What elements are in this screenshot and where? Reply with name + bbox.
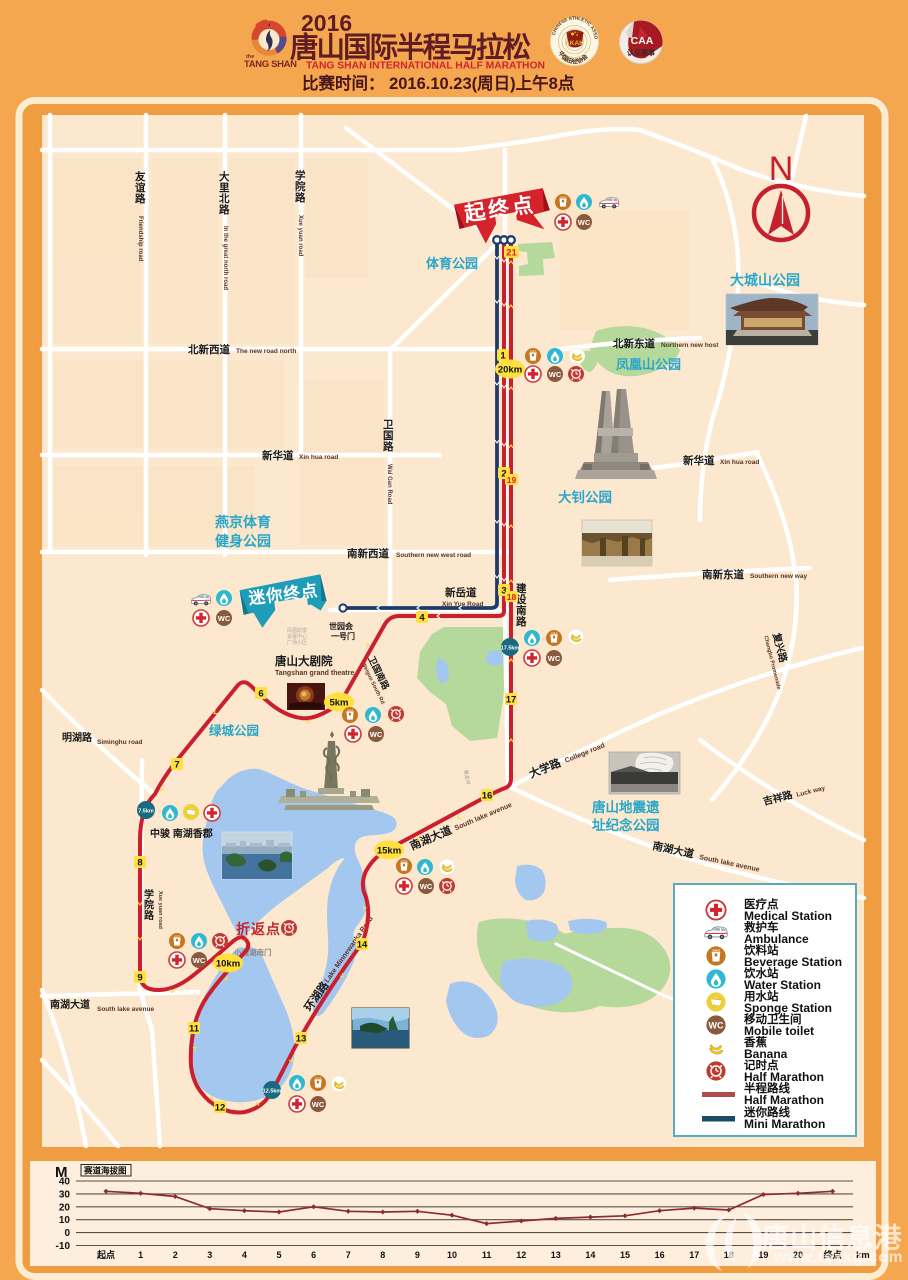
svg-text:10: 10 (59, 1215, 71, 1226)
svg-text:21: 21 (506, 248, 517, 259)
svg-text:11: 11 (482, 1250, 492, 1260)
svg-text:11: 11 (189, 1024, 200, 1035)
svg-text:Friendship road: Friendship road (137, 216, 143, 262)
svg-text:新岳道: 新岳道 (445, 586, 477, 599)
svg-text:比赛时间： 2016.10.23(周日)上午8点: 比赛时间： 2016.10.23(周日)上午8点 (302, 73, 575, 93)
svg-text:6: 6 (311, 1250, 316, 1260)
svg-text:2: 2 (173, 1250, 178, 1260)
svg-text:20km: 20km (498, 365, 522, 376)
svg-text:16: 16 (482, 791, 493, 802)
svg-text:健身公园: 健身公园 (215, 533, 271, 549)
svg-text:折返点: 折返点 (236, 921, 281, 937)
svg-text:广场小区: 广场小区 (287, 639, 307, 646)
svg-text:建设南路: 建设南路 (515, 582, 527, 628)
svg-text:南新西道: 南新西道 (347, 547, 389, 560)
svg-text:新华道: 新华道 (683, 454, 715, 467)
svg-text:15: 15 (620, 1250, 630, 1260)
svg-text:大钊公园: 大钊公园 (558, 489, 612, 505)
svg-text:Northern new host: Northern new host (661, 342, 719, 349)
svg-text:12.5km: 12.5km (263, 1089, 282, 1095)
svg-text:Beverage Station: Beverage Station (744, 955, 842, 969)
svg-text:绿城公园: 绿城公园 (209, 723, 259, 738)
svg-text:8: 8 (380, 1250, 385, 1260)
svg-text:In the great north road: In the great north road (222, 226, 228, 290)
svg-text:TANG SHAN INTERNATIONAL HALF M: TANG SHAN INTERNATIONAL HALF MARATHON (306, 61, 545, 72)
svg-text:0: 0 (64, 1228, 70, 1239)
svg-text:9: 9 (137, 973, 142, 984)
svg-text:Southern new way: Southern new way (750, 573, 807, 580)
svg-text:12: 12 (516, 1250, 526, 1260)
svg-text:17: 17 (506, 695, 517, 706)
svg-text:Wai Gan Road: Wai Gan Road (386, 464, 392, 505)
svg-text:世园会: 世园会 (329, 621, 353, 631)
svg-text:17: 17 (689, 1250, 699, 1260)
svg-text:9: 9 (415, 1250, 420, 1260)
svg-text:7: 7 (174, 760, 179, 771)
svg-text:唐山国际半程马拉松: 唐山国际半程马拉松 (290, 31, 531, 64)
svg-text:南新东道: 南新东道 (702, 568, 744, 581)
svg-text:10km: 10km (216, 959, 240, 970)
svg-text:South lake avenue: South lake avenue (97, 1006, 154, 1013)
svg-text:Mini Marathon: Mini Marathon (744, 1117, 825, 1131)
svg-text:4: 4 (419, 613, 425, 624)
svg-text:Xin hua road: Xin hua road (299, 454, 338, 461)
svg-text:Siminghu road: Siminghu road (97, 739, 143, 746)
svg-text:新华道: 新华道 (262, 449, 294, 462)
svg-text:7.5km: 7.5km (138, 809, 154, 815)
svg-text:1: 1 (500, 351, 506, 362)
svg-text:Medical Station: Medical Station (744, 909, 832, 923)
svg-text:Xin hua road: Xin hua road (720, 459, 759, 466)
svg-text:Half Marathon: Half Marathon (744, 1093, 824, 1107)
svg-text:赛道海拔图: 赛道海拔图 (83, 1166, 127, 1176)
svg-text:10: 10 (447, 1250, 457, 1260)
svg-text:16: 16 (655, 1250, 665, 1260)
svg-text:-10: -10 (56, 1241, 71, 1252)
svg-text:40: 40 (59, 1177, 71, 1188)
svg-text:19: 19 (507, 475, 517, 485)
svg-text:明湖路: 明湖路 (62, 731, 93, 744)
svg-text:4: 4 (242, 1250, 247, 1260)
svg-text:17.5km: 17.5km (501, 646, 520, 652)
svg-text:北新东道: 北新东道 (613, 337, 655, 350)
svg-text:一号门: 一号门 (331, 631, 355, 641)
svg-text:18: 18 (507, 592, 517, 602)
svg-text:凤凰山公园: 凤凰山公园 (616, 357, 681, 372)
svg-text:13: 13 (296, 1034, 307, 1045)
svg-text:唐山地震遗: 唐山地震遗 (592, 799, 660, 815)
svg-text:Sponge Station: Sponge Station (744, 1001, 832, 1015)
svg-text:20: 20 (59, 1202, 71, 1213)
svg-text:13: 13 (551, 1250, 561, 1260)
svg-text:Xue yuan road: Xue yuan road (157, 891, 163, 929)
svg-text:Mobile toilet: Mobile toilet (744, 1024, 814, 1038)
svg-text:大里北路: 大里北路 (219, 170, 230, 216)
svg-text:起点: 起点 (96, 1249, 115, 1260)
svg-text:6: 6 (258, 689, 263, 700)
svg-text:The new road north: The new road north (236, 348, 296, 355)
svg-text:北新西道: 北新西道 (188, 343, 230, 356)
svg-text:址纪念公园: 址纪念公园 (592, 817, 660, 833)
svg-text:认证赛事: 认证赛事 (627, 48, 655, 57)
svg-text:AKAK: AKAK (565, 40, 584, 47)
svg-text:14: 14 (585, 1250, 595, 1260)
svg-text:Ambulance: Ambulance (744, 932, 809, 946)
svg-text:5km: 5km (329, 698, 348, 709)
svg-text:会展中心: 会展中心 (287, 633, 307, 640)
svg-text:南湖大道: 南湖大道 (50, 998, 90, 1011)
svg-text:Tangshan grand theatre: Tangshan grand theatre (275, 670, 354, 677)
svg-text:5: 5 (276, 1250, 281, 1260)
svg-text:15km: 15km (377, 846, 401, 857)
svg-text:30: 30 (59, 1189, 71, 1200)
svg-text:体育公园: 体育公园 (426, 256, 478, 271)
svg-text:学院路: 学院路 (295, 169, 306, 204)
svg-text:Xue yuan road: Xue yuan road (297, 215, 303, 257)
svg-text:唐山大剧院: 唐山大剧院 (274, 654, 333, 668)
svg-text:www.tsxxg.com: www.tsxxg.com (773, 1249, 904, 1266)
svg-text:学院路: 学院路 (144, 888, 155, 922)
svg-text:8: 8 (137, 858, 142, 869)
svg-text:凤凰财富: 凤凰财富 (287, 627, 307, 634)
svg-text:燕京体育: 燕京体育 (215, 514, 271, 530)
svg-text:14: 14 (357, 940, 368, 951)
svg-text:中骏 南湖香郡: 中骏 南湖香郡 (150, 827, 213, 840)
svg-text:友谊路: 友谊路 (134, 170, 146, 205)
svg-text:Southern new west road: Southern new west road (396, 552, 471, 559)
svg-text:卫国路: 卫国路 (383, 419, 394, 453)
svg-text:12: 12 (215, 1103, 226, 1114)
svg-text:CAA: CAA (631, 35, 654, 47)
svg-text:Banana: Banana (744, 1047, 788, 1061)
svg-text:大城山公园: 大城山公园 (730, 272, 800, 288)
svg-text:1: 1 (138, 1250, 143, 1260)
svg-text:3: 3 (207, 1250, 212, 1260)
svg-text:7: 7 (346, 1250, 351, 1260)
svg-text:Water Station: Water Station (744, 978, 821, 992)
svg-text:N: N (769, 150, 794, 188)
svg-text:Half Marathon: Half Marathon (744, 1070, 824, 1084)
